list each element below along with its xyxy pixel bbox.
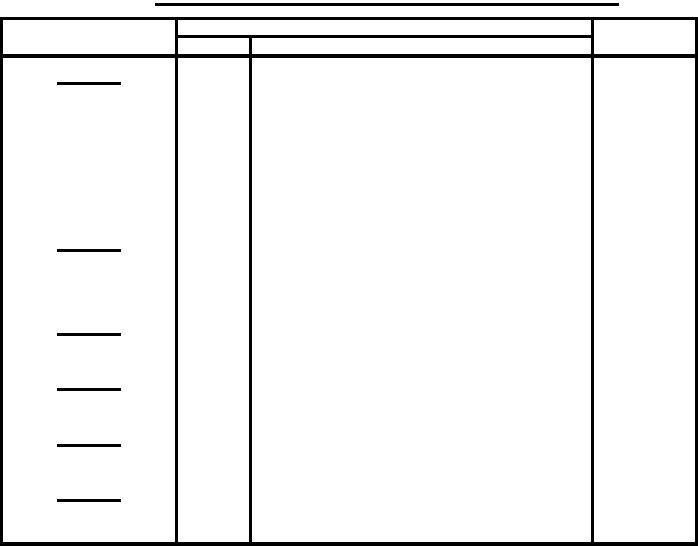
header-cell-right [594, 20, 695, 54]
header-cell-sub-small [178, 38, 249, 54]
body-column-right [594, 58, 695, 542]
header-cell-sub-large [252, 38, 591, 54]
blank-line [57, 333, 121, 336]
blank-line [57, 444, 121, 447]
blank-line [57, 249, 121, 252]
header-cell-merged [178, 20, 591, 35]
body-column-sub [178, 58, 249, 542]
blank-line [57, 388, 121, 391]
title-underline [155, 3, 619, 6]
blank-line [57, 499, 121, 502]
blank-line [57, 82, 121, 85]
body-column-left [3, 58, 175, 542]
body-column-main [252, 58, 591, 542]
header-cell-left [3, 20, 175, 54]
scanned-blank-form-page [0, 0, 698, 546]
